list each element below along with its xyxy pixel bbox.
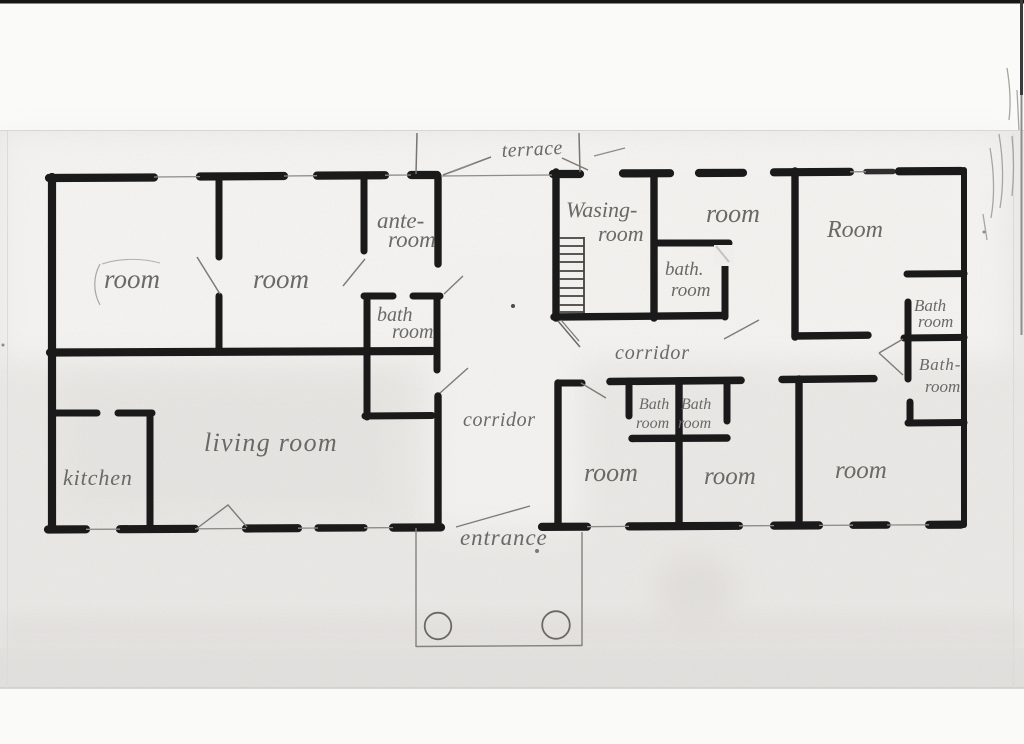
svg-text:room: room [392, 321, 433, 343]
svg-text:Bath: Bath [681, 396, 711, 413]
svg-text:kitchen: kitchen [63, 465, 133, 490]
svg-text:room: room [584, 458, 638, 487]
svg-text:room: room [678, 415, 711, 432]
svg-text:terrace: terrace [501, 137, 563, 162]
svg-text:Bath: Bath [639, 396, 669, 413]
svg-text:corridor: corridor [615, 342, 690, 364]
svg-text:room: room [706, 199, 760, 228]
svg-text:room: room [598, 221, 644, 246]
svg-text:room: room [636, 415, 669, 432]
svg-text:room: room [253, 264, 309, 294]
svg-text:room: room [704, 463, 756, 490]
svg-text:room: room [671, 280, 710, 301]
svg-text:room: room [388, 227, 436, 252]
svg-text:room: room [104, 264, 160, 294]
svg-text:living room: living room [204, 428, 338, 457]
svg-text:corridor: corridor [463, 409, 536, 431]
svg-text:room: room [918, 312, 953, 331]
svg-text:room: room [925, 377, 960, 396]
svg-text:Bath-: Bath- [919, 355, 961, 374]
svg-text:Room: Room [826, 217, 883, 243]
svg-text:room: room [835, 457, 887, 484]
svg-text:Wasing-: Wasing- [566, 197, 637, 222]
svg-text:entrance: entrance [460, 525, 548, 550]
svg-text:bath.: bath. [665, 259, 704, 280]
